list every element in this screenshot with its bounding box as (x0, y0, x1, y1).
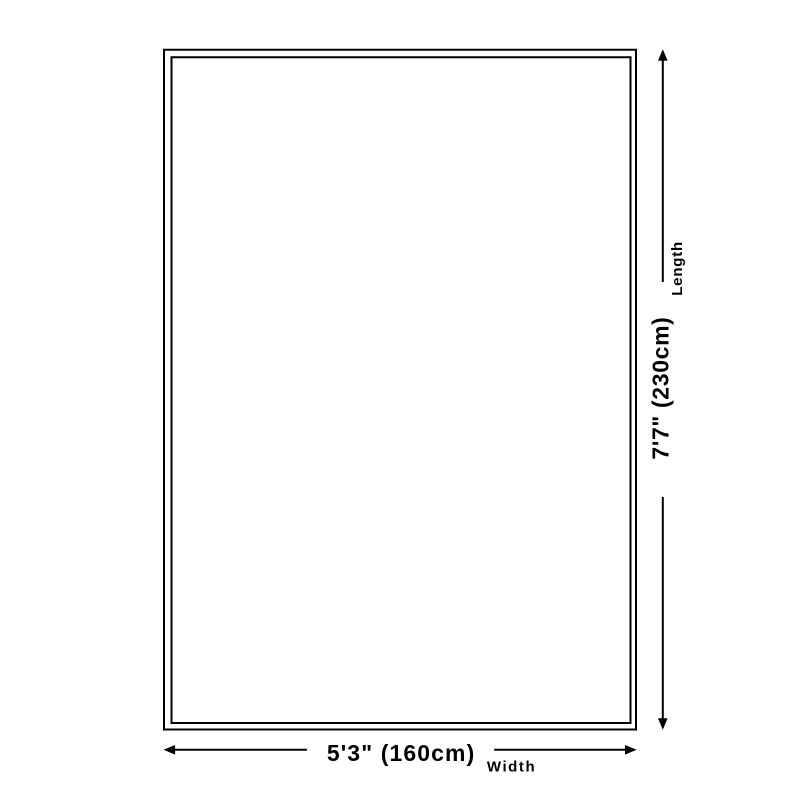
svg-text:Length: Length (669, 241, 686, 296)
svg-text:5'3" (160cm): 5'3" (160cm) (327, 740, 475, 766)
svg-text:7'7" (230cm): 7'7" (230cm) (648, 317, 674, 460)
svg-text:Width: Width (487, 759, 536, 776)
